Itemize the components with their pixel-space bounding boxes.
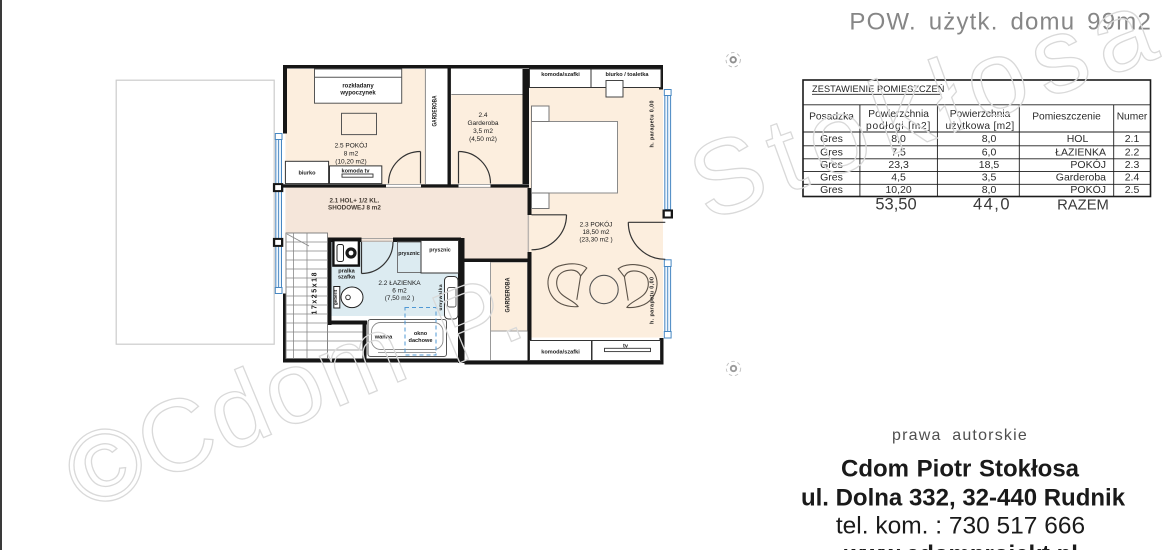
svg-text:2.1: 2.1 [1125,133,1140,145]
svg-text:44,0: 44,0 [973,196,1011,214]
svg-text:18,50 m2: 18,50 m2 [582,229,609,236]
svg-text:komoda/szafki: komoda/szafki [541,350,580,356]
svg-text:10,20: 10,20 [885,184,911,196]
svg-text:(10,20 m2): (10,20 m2) [335,159,366,166]
svg-text:8,0: 8,0 [982,184,997,196]
svg-text:h. parapetu 0,00: h. parapetu 0,00 [650,277,656,324]
svg-text:Cdom Piotr Stokłosa: Cdom Piotr Stokłosa [841,456,1080,483]
svg-text:Numer: Numer [1117,112,1148,123]
svg-text:dachowe: dachowe [409,338,433,344]
svg-text:(7,50 m2 ): (7,50 m2 ) [385,295,415,302]
svg-text:szafka: szafka [338,274,356,280]
svg-text:POKÓJ: POKÓJ [1070,158,1106,171]
svg-text:biurko: biurko [298,171,316,177]
svg-text:POKÓJ: POKÓJ [1070,183,1106,196]
svg-text:okno: okno [414,331,428,337]
svg-text:biurko / toaletka: biurko / toaletka [606,72,650,78]
svg-text:ŁAZIENKA: ŁAZIENKA [1055,146,1106,158]
svg-text:RAZEM: RAZEM [1057,198,1109,214]
svg-text:Garderoba: Garderoba [467,120,498,127]
svg-text:prysznic: prysznic [429,248,451,254]
svg-text:www.cdomprojekt.pl: www.cdomprojekt.pl [843,541,1078,550]
svg-text:3,5: 3,5 [982,172,997,184]
svg-text:2.4: 2.4 [478,112,487,119]
svg-text:SHODOWEJ 8 m2: SHODOWEJ 8 m2 [328,204,381,211]
svg-text:2.2: 2.2 [1125,146,1140,158]
svg-text:2.4: 2.4 [1125,172,1140,184]
svg-text:geberit: geberit [333,289,338,305]
svg-text:53,50: 53,50 [875,196,916,214]
svg-text:2.2 ŁAZIENKA: 2.2 ŁAZIENKA [378,280,421,287]
svg-text:2.5 POKÓJ: 2.5 POKÓJ [335,141,368,150]
svg-text:tel. kom. : 730 517 666: tel. kom. : 730 517 666 [836,513,1085,540]
svg-text:GARDEROBA: GARDEROBA [432,95,438,127]
svg-text:6 m2: 6 m2 [392,288,407,295]
svg-text:prawa autorskie: prawa autorskie [892,427,1028,444]
svg-text:h. parapetu 0,00: h. parapetu 0,00 [650,101,656,148]
svg-text:2.1 HOL+ 1/2 KL.: 2.1 HOL+ 1/2 KL. [330,197,380,204]
svg-text:(23,30 m2 ): (23,30 m2 ) [579,237,612,244]
svg-text:2.3: 2.3 [1125,159,1140,171]
svg-text:2.3 POKÓJ: 2.3 POKÓJ [580,220,613,229]
svg-text:HOL: HOL [1067,133,1089,145]
svg-text:wypoczynek: wypoczynek [339,91,376,97]
svg-text:ul. Dolna 332, 32-440 Rudnik: ul. Dolna 332, 32-440 Rudnik [801,485,1126,512]
svg-text:komoda/szafki: komoda/szafki [541,72,580,78]
svg-text:prysznic: prysznic [398,251,420,257]
svg-text:8 m2: 8 m2 [344,151,359,158]
svg-text:6,0: 6,0 [982,146,997,158]
svg-text:Garderoba: Garderoba [1056,172,1106,184]
svg-text:2.5: 2.5 [1125,184,1140,196]
svg-text:17x25x18: 17x25x18 [312,272,319,314]
svg-text:3,5 m2: 3,5 m2 [473,128,493,135]
svg-text:(4,50 m2): (4,50 m2) [469,136,497,143]
svg-text:18,5: 18,5 [979,159,1000,171]
svg-text:rozkładany: rozkładany [342,84,374,90]
